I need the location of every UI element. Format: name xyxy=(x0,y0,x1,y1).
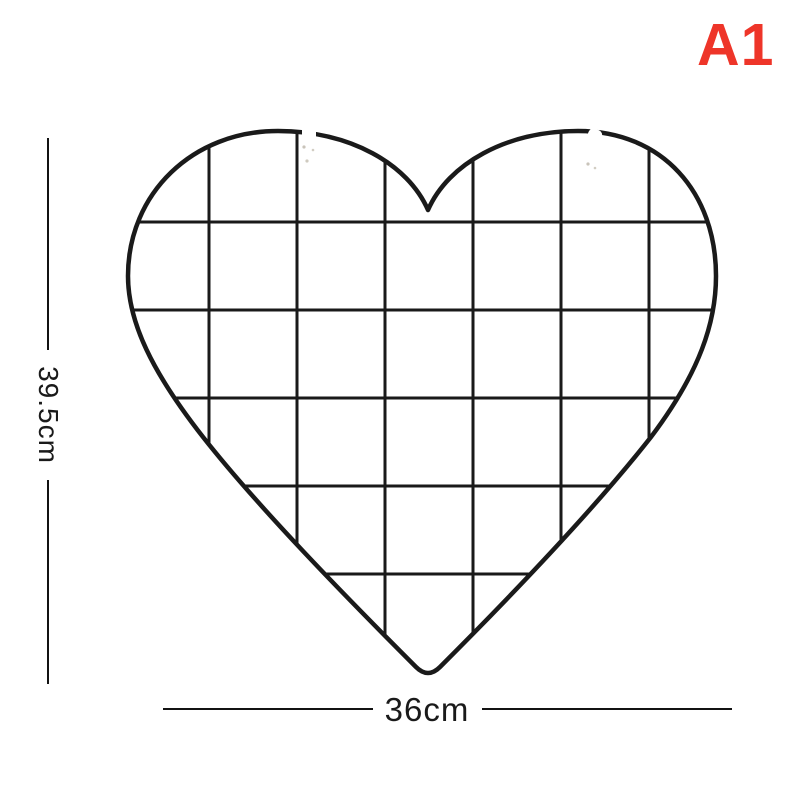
width-dim-line-left xyxy=(163,708,373,710)
height-dim-label: 39.5cm xyxy=(32,366,64,464)
product-image: A1 xyxy=(0,0,800,800)
height-dim-line-lower xyxy=(47,480,49,684)
grid-wires xyxy=(120,120,726,690)
width-dim-label: 36cm xyxy=(385,691,470,729)
hanging-clip-left xyxy=(302,117,316,163)
width-dim-line-right xyxy=(482,708,732,710)
height-dim-line-upper xyxy=(47,138,49,350)
heart-outline xyxy=(128,131,716,673)
heart-grid-panel xyxy=(0,0,800,800)
